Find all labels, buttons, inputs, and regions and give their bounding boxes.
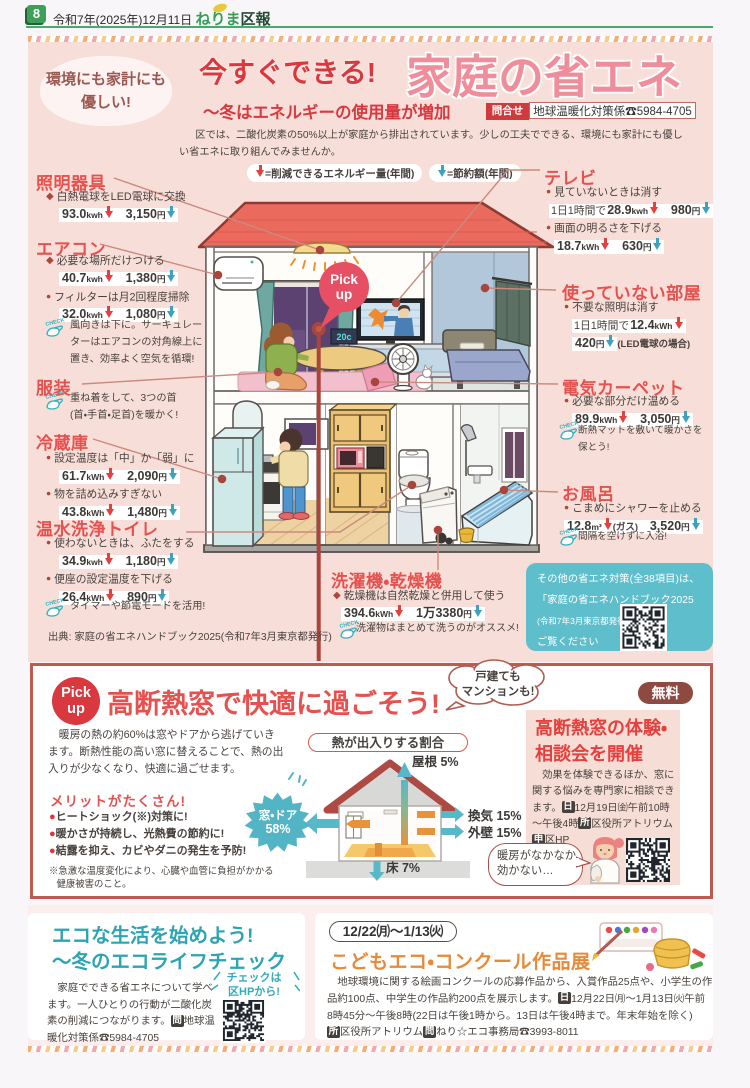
svg-text:戸建ても: 戸建ても xyxy=(475,669,520,683)
svg-text:外壁 15%: 外壁 15% xyxy=(467,825,522,840)
svg-text:Pick: Pick xyxy=(330,272,358,287)
svg-text:床 7%: 床 7% xyxy=(386,860,420,875)
svg-text:58%: 58% xyxy=(265,822,290,836)
svg-text:屋根 5%: 屋根 5% xyxy=(412,754,459,769)
svg-text:換気 15%: 換気 15% xyxy=(468,808,522,823)
svg-text:窓・ドア: 窓・ドア xyxy=(259,808,298,822)
svg-text:up: up xyxy=(336,287,353,302)
svg-text:マンションも!: マンションも! xyxy=(462,685,535,698)
svg-text:20c: 20c xyxy=(336,332,351,342)
